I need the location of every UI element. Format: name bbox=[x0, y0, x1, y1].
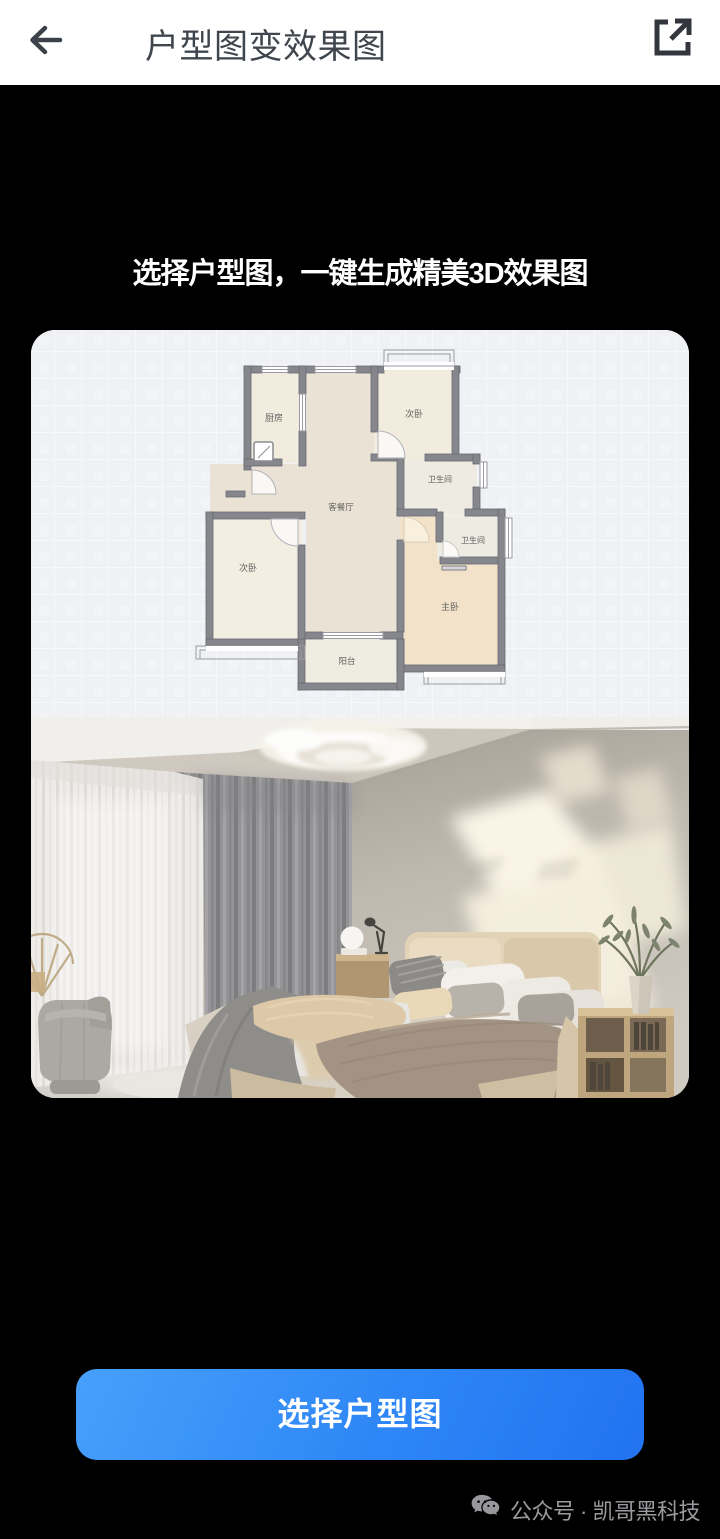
svg-text:次卧: 次卧 bbox=[405, 408, 423, 419]
svg-text:卫生间: 卫生间 bbox=[428, 474, 452, 484]
svg-text:卫生间: 卫生间 bbox=[461, 535, 485, 545]
svg-text:次卧: 次卧 bbox=[239, 562, 257, 573]
svg-text:阳台: 阳台 bbox=[338, 656, 355, 666]
svg-text:厨房: 厨房 bbox=[265, 412, 283, 423]
svg-text:主卧: 主卧 bbox=[441, 601, 459, 612]
svg-text:客餐厅: 客餐厅 bbox=[328, 502, 354, 512]
